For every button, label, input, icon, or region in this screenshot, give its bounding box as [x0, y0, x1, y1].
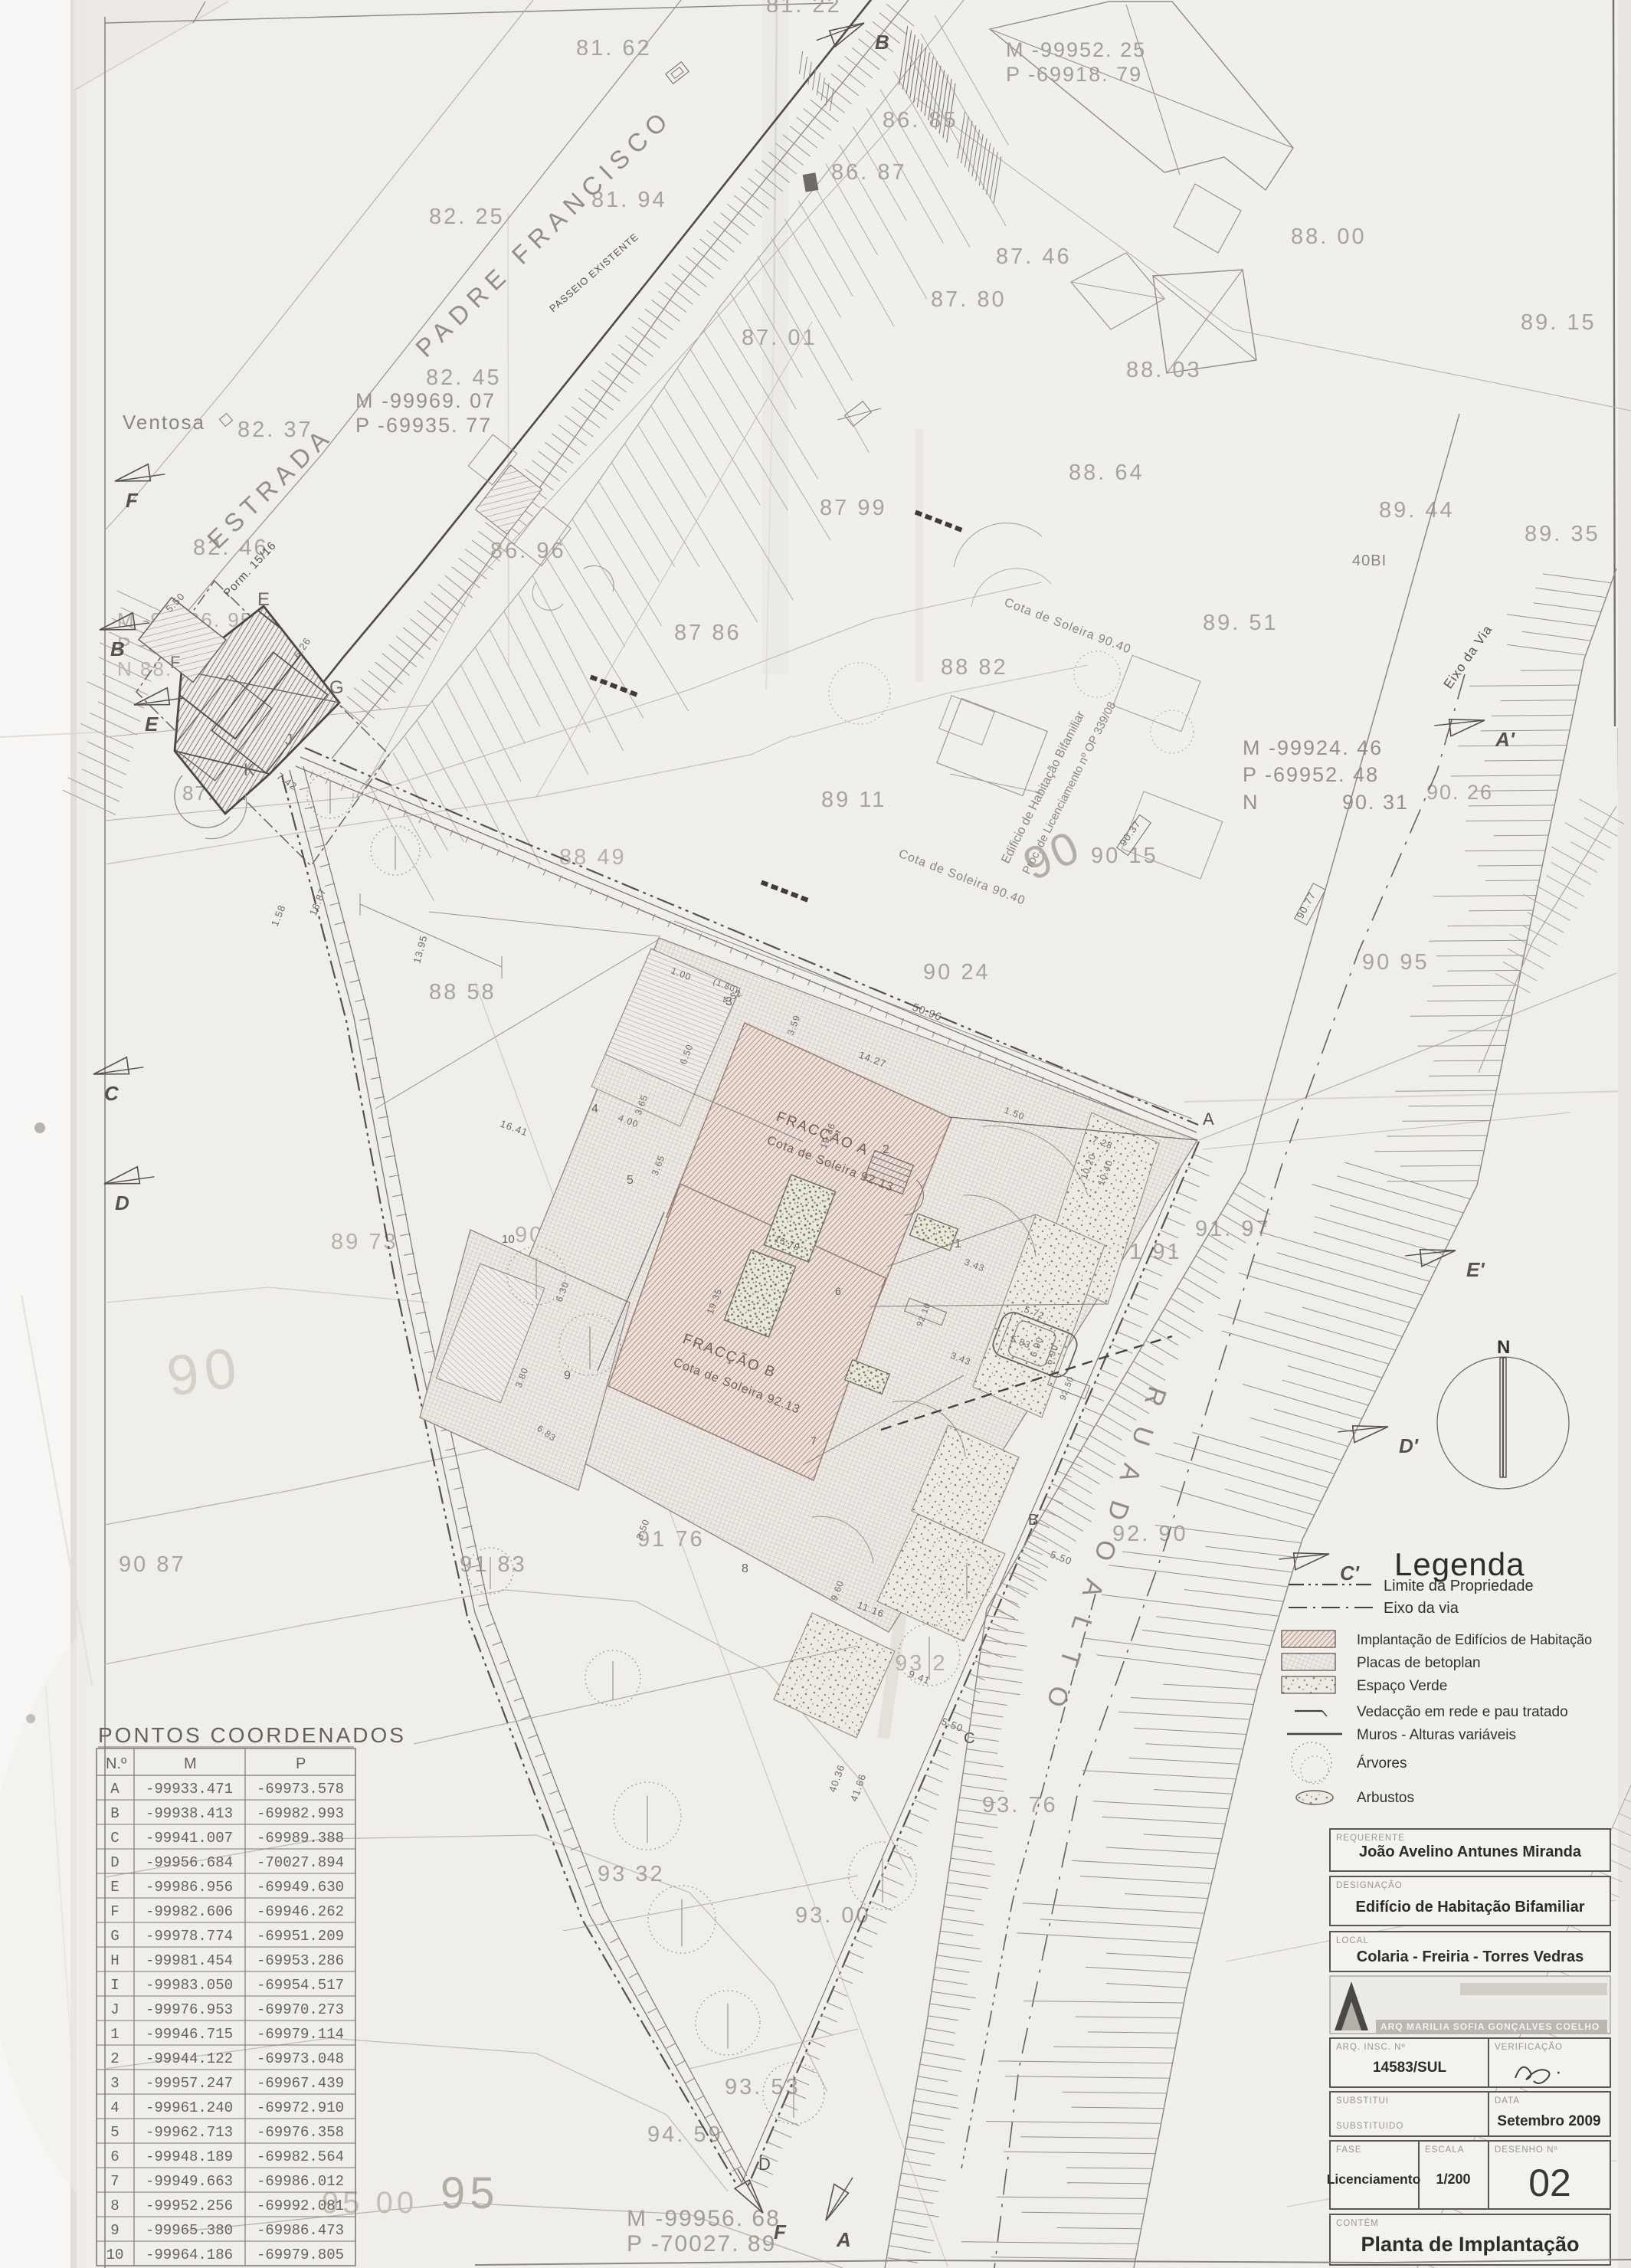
- svg-text:ARQ MARILIA SOFIA GONÇALVES CO: ARQ MARILIA SOFIA GONÇALVES COELHO: [1380, 2021, 1600, 2032]
- svg-text:Implantação de Edifícios de Ha: Implantação de Edifícios de Habitação: [1357, 1632, 1592, 1647]
- svg-text:1: 1: [955, 1237, 961, 1250]
- svg-text:-69982.564: -69982.564: [257, 2148, 344, 2165]
- svg-text:P -69935. 77: P -69935. 77: [355, 414, 492, 437]
- svg-text:82. 45: 82. 45: [426, 365, 502, 390]
- svg-text:SUBSTITUI: SUBSTITUI: [1336, 2096, 1389, 2106]
- svg-text:94. 59: 94. 59: [647, 2122, 723, 2147]
- svg-text:A': A': [1495, 728, 1515, 751]
- svg-text:B: B: [110, 637, 125, 660]
- svg-text:D': D': [1399, 1434, 1419, 1457]
- svg-text:N.º: N.º: [106, 1755, 127, 1772]
- svg-text:N: N: [1243, 791, 1259, 814]
- svg-text:02: 02: [1528, 2161, 1571, 2204]
- svg-text:P -70027. 89: P -70027. 89: [627, 2231, 776, 2257]
- svg-text:89. 44: 89. 44: [1379, 498, 1455, 523]
- svg-text:-69973.048: -69973.048: [257, 2050, 344, 2067]
- svg-text:2: 2: [110, 2050, 119, 2067]
- svg-text:-99982.606: -99982.606: [146, 1903, 233, 1920]
- svg-text:88 49: 88 49: [559, 845, 627, 870]
- svg-text:89 73: 89 73: [331, 1230, 398, 1254]
- svg-text:D: D: [758, 2155, 771, 2174]
- svg-text:86. 96: 86. 96: [490, 539, 566, 563]
- svg-text:-99941.007: -99941.007: [146, 1830, 233, 1847]
- svg-text:M -99956. 68: M -99956. 68: [627, 2206, 781, 2231]
- svg-text:I: I: [110, 1977, 119, 1994]
- svg-text:-99961.240: -99961.240: [146, 2099, 233, 2116]
- svg-text:Edifício de Habitação Bifamili: Edifício de Habitação Bifamiliar: [1356, 1899, 1585, 1916]
- svg-text:-99957.247: -99957.247: [146, 2075, 233, 2092]
- svg-text:Setembro 2009: Setembro 2009: [1497, 2113, 1600, 2129]
- svg-text:F: F: [126, 489, 139, 512]
- svg-text:Vedacção em rede e pau tratado: Vedacção em rede e pau tratado: [1357, 1704, 1568, 1720]
- svg-text:-99965.380: -99965.380: [146, 2222, 233, 2239]
- svg-text:8: 8: [742, 1562, 748, 1575]
- svg-text:M -99924. 46: M -99924. 46: [1243, 736, 1383, 759]
- svg-text:7: 7: [811, 1434, 817, 1447]
- svg-text:K: K: [244, 760, 255, 779]
- svg-text:Limite da Propriedade: Limite da Propriedade: [1384, 1578, 1534, 1594]
- svg-text:93. 00: 93. 00: [795, 1903, 871, 1928]
- svg-text:89. 51: 89. 51: [1203, 611, 1279, 635]
- svg-text:10: 10: [106, 2247, 124, 2263]
- svg-text:-99952.256: -99952.256: [146, 2198, 233, 2214]
- svg-text:D: D: [115, 1191, 129, 1214]
- svg-text:SUBSTITUIDO: SUBSTITUIDO: [1336, 2122, 1403, 2131]
- svg-text:Muros - Alturas variáveis: Muros - Alturas variáveis: [1357, 1727, 1516, 1743]
- svg-text:CONTÉM: CONTÉM: [1336, 2218, 1379, 2228]
- svg-text:9: 9: [110, 2222, 119, 2239]
- svg-text:2: 2: [883, 1143, 889, 1156]
- svg-text:Arbustos: Arbustos: [1357, 1790, 1414, 1806]
- svg-text:J: J: [285, 732, 293, 749]
- svg-text:90. 26: 90. 26: [1426, 781, 1493, 804]
- svg-text:1: 1: [110, 2026, 119, 2043]
- svg-text:DESENHO Nº: DESENHO Nº: [1495, 2145, 1558, 2155]
- svg-text:93 32: 93 32: [598, 1862, 665, 1886]
- svg-text:-69976.358: -69976.358: [257, 2124, 344, 2141]
- svg-text:-99949.663: -99949.663: [146, 2173, 233, 2190]
- svg-text:N: N: [1497, 1337, 1510, 1358]
- svg-text:-99983.050: -99983.050: [146, 1977, 233, 1994]
- svg-text:90 24: 90 24: [923, 960, 991, 985]
- svg-text:F: F: [170, 653, 180, 672]
- svg-text:M: M: [184, 1755, 197, 1772]
- svg-text:A: A: [1203, 1109, 1214, 1129]
- svg-text:-69989.388: -69989.388: [257, 1830, 344, 1847]
- svg-text:-69949.630: -69949.630: [257, 1879, 344, 1896]
- svg-text:-99986.956: -99986.956: [146, 1879, 233, 1896]
- svg-text:E: E: [145, 713, 159, 736]
- svg-text:VERIFICAÇÃO: VERIFICAÇÃO: [1495, 2042, 1563, 2052]
- svg-text:C: C: [110, 1830, 119, 1847]
- svg-text:87. 01: 87. 01: [742, 326, 817, 350]
- svg-text:B: B: [110, 1805, 119, 1822]
- svg-text:89 11: 89 11: [821, 788, 886, 812]
- svg-text:-69986.473: -69986.473: [257, 2222, 344, 2239]
- svg-text:LOCAL: LOCAL: [1336, 1936, 1369, 1945]
- svg-text:88 58: 88 58: [429, 980, 496, 1005]
- svg-text:G: G: [110, 1928, 119, 1945]
- svg-text:-69972.910: -69972.910: [257, 2099, 344, 2116]
- svg-text:-99938.413: -99938.413: [146, 1805, 233, 1822]
- svg-text:95: 95: [441, 2168, 499, 2218]
- svg-text:6: 6: [110, 2148, 119, 2165]
- svg-text:F: F: [774, 2220, 787, 2243]
- svg-text:8: 8: [110, 2198, 119, 2214]
- svg-text:88. 00: 88. 00: [1291, 225, 1367, 249]
- svg-text:4: 4: [110, 2099, 119, 2116]
- svg-text:-99948.189: -99948.189: [146, 2148, 233, 2165]
- svg-text:3: 3: [110, 2075, 119, 2092]
- svg-text:86. 85: 86. 85: [883, 108, 958, 133]
- svg-text:-69967.439: -69967.439: [257, 2075, 344, 2092]
- svg-text:91 83: 91 83: [460, 1552, 527, 1577]
- svg-text:E': E': [1466, 1258, 1485, 1281]
- svg-text:90: 90: [163, 1335, 247, 1408]
- svg-text:9: 9: [564, 1369, 571, 1382]
- svg-text:-69979.114: -69979.114: [257, 2026, 344, 2043]
- svg-text:89. 15: 89. 15: [1521, 310, 1597, 335]
- svg-text:M -99969. 07: M -99969. 07: [355, 389, 496, 412]
- svg-text:ESCALA: ESCALA: [1425, 2145, 1464, 2155]
- svg-text:P -69952. 48: P -69952. 48: [1243, 763, 1379, 786]
- svg-text:87. 80: 87. 80: [931, 287, 1007, 312]
- svg-text:Colaria - Freiria - Torres Ved: Colaria - Freiria - Torres Vedras: [1357, 1948, 1584, 1965]
- svg-text:E: E: [110, 1879, 119, 1896]
- svg-text:40BI: 40BI: [1352, 552, 1387, 569]
- svg-text:João Avelino Antunes Miranda: João Avelino Antunes Miranda: [1359, 1844, 1582, 1860]
- svg-text:-69954.517: -69954.517: [257, 1977, 344, 1994]
- svg-text:Árvores: Árvores: [1357, 1755, 1407, 1771]
- svg-text:-99978.774: -99978.774: [146, 1928, 233, 1945]
- svg-text:Placas de betoplan: Placas de betoplan: [1357, 1655, 1481, 1671]
- svg-text:-69951.209: -69951.209: [257, 1928, 344, 1945]
- svg-text:10: 10: [502, 1233, 515, 1246]
- svg-text:B: B: [875, 31, 889, 54]
- svg-text:Ventosa: Ventosa: [123, 411, 205, 434]
- svg-text:-99946.715: -99946.715: [146, 2026, 233, 2043]
- svg-text:Eixo da via: Eixo da via: [1384, 1600, 1459, 1617]
- svg-text:4: 4: [591, 1103, 598, 1116]
- svg-text:81. 62: 81. 62: [576, 36, 652, 61]
- svg-text:14583/SUL: 14583/SUL: [1373, 2060, 1447, 2076]
- svg-text:P: P: [296, 1755, 306, 1772]
- svg-text:93. 53: 93. 53: [725, 2075, 801, 2099]
- svg-text:5: 5: [110, 2124, 119, 2141]
- svg-text:M -99952. 25: M -99952. 25: [1006, 38, 1146, 61]
- svg-text:H: H: [110, 1952, 119, 1969]
- svg-text:-99976.953: -99976.953: [146, 2001, 233, 2018]
- svg-text:-69953.286: -69953.286: [257, 1952, 344, 1969]
- svg-text:-69992.081: -69992.081: [257, 2198, 344, 2214]
- svg-text:7: 7: [110, 2173, 119, 2190]
- svg-text:REQUERENTE: REQUERENTE: [1336, 1834, 1405, 1843]
- svg-text:90 95: 90 95: [1362, 950, 1430, 975]
- svg-text:PONTOS COORDENADOS: PONTOS COORDENADOS: [98, 1723, 406, 1747]
- svg-text:Planta de Implantação: Planta de Implantação: [1361, 2233, 1579, 2256]
- svg-text:-69979.805: -69979.805: [257, 2247, 344, 2263]
- svg-text:87 86: 87 86: [674, 621, 742, 645]
- svg-text:89. 35: 89. 35: [1525, 522, 1600, 546]
- svg-text:DATA: DATA: [1495, 2096, 1520, 2106]
- svg-text:FASE: FASE: [1336, 2145, 1361, 2155]
- svg-text:DESIGNAÇÃO: DESIGNAÇÃO: [1336, 1880, 1403, 1890]
- svg-text:90 87: 90 87: [119, 1552, 186, 1577]
- svg-text:1/200: 1/200: [1436, 2171, 1470, 2187]
- svg-text:93. 76: 93. 76: [982, 1793, 1058, 1817]
- svg-text:A: A: [110, 1781, 120, 1798]
- svg-text:A: A: [836, 2228, 851, 2251]
- svg-text:-70027.894: -70027.894: [257, 1854, 344, 1871]
- svg-text:-69970.273: -69970.273: [257, 2001, 344, 2018]
- svg-text:-99933.471: -99933.471: [146, 1781, 233, 1798]
- svg-text:G: G: [329, 677, 344, 698]
- svg-text:ARQ. INSC. Nº: ARQ. INSC. Nº: [1336, 2043, 1406, 2052]
- svg-text:·: ·: [1555, 2060, 1562, 2083]
- svg-text:88 82: 88 82: [941, 655, 1008, 680]
- svg-text:-99964.186: -99964.186: [146, 2247, 233, 2263]
- svg-text:C: C: [104, 1082, 120, 1105]
- svg-text:87 99: 87 99: [820, 496, 887, 520]
- svg-text:E: E: [257, 589, 270, 610]
- svg-text:88. 64: 88. 64: [1069, 460, 1145, 485]
- svg-text:F: F: [110, 1903, 119, 1920]
- svg-text:5: 5: [627, 1174, 634, 1187]
- svg-text:87. 46: 87. 46: [996, 244, 1072, 269]
- svg-text:82. 25: 82. 25: [429, 205, 505, 229]
- svg-text:6: 6: [835, 1285, 841, 1297]
- svg-text:D: D: [110, 1854, 119, 1871]
- svg-text:-69973.578: -69973.578: [257, 1781, 344, 1798]
- svg-text:-99956.684: -99956.684: [146, 1854, 233, 1871]
- svg-text:-99981.454: -99981.454: [146, 1952, 233, 1969]
- svg-text:B: B: [1028, 1512, 1038, 1529]
- svg-text:-69946.262: -69946.262: [257, 1903, 344, 1920]
- svg-text:3: 3: [725, 995, 732, 1008]
- svg-text:Espaço Verde: Espaço Verde: [1357, 1678, 1447, 1694]
- svg-text:C': C': [1340, 1562, 1360, 1585]
- svg-text:-99962.713: -99962.713: [146, 2124, 233, 2141]
- svg-text:J: J: [110, 2001, 119, 2018]
- svg-text:-69982.993: -69982.993: [257, 1805, 344, 1822]
- svg-text:81. 22: 81. 22: [766, 0, 842, 18]
- svg-text:P -69918. 79: P -69918. 79: [1006, 63, 1142, 86]
- svg-text:-99944.122: -99944.122: [146, 2050, 233, 2067]
- svg-text:-69986.012: -69986.012: [257, 2173, 344, 2190]
- svg-text:Licenciamento: Licenciamento: [1327, 2171, 1421, 2187]
- svg-text:86. 87: 86. 87: [831, 160, 907, 185]
- svg-text:Legenda: Legenda: [1394, 1546, 1525, 1582]
- svg-text:88. 03: 88. 03: [1126, 358, 1202, 382]
